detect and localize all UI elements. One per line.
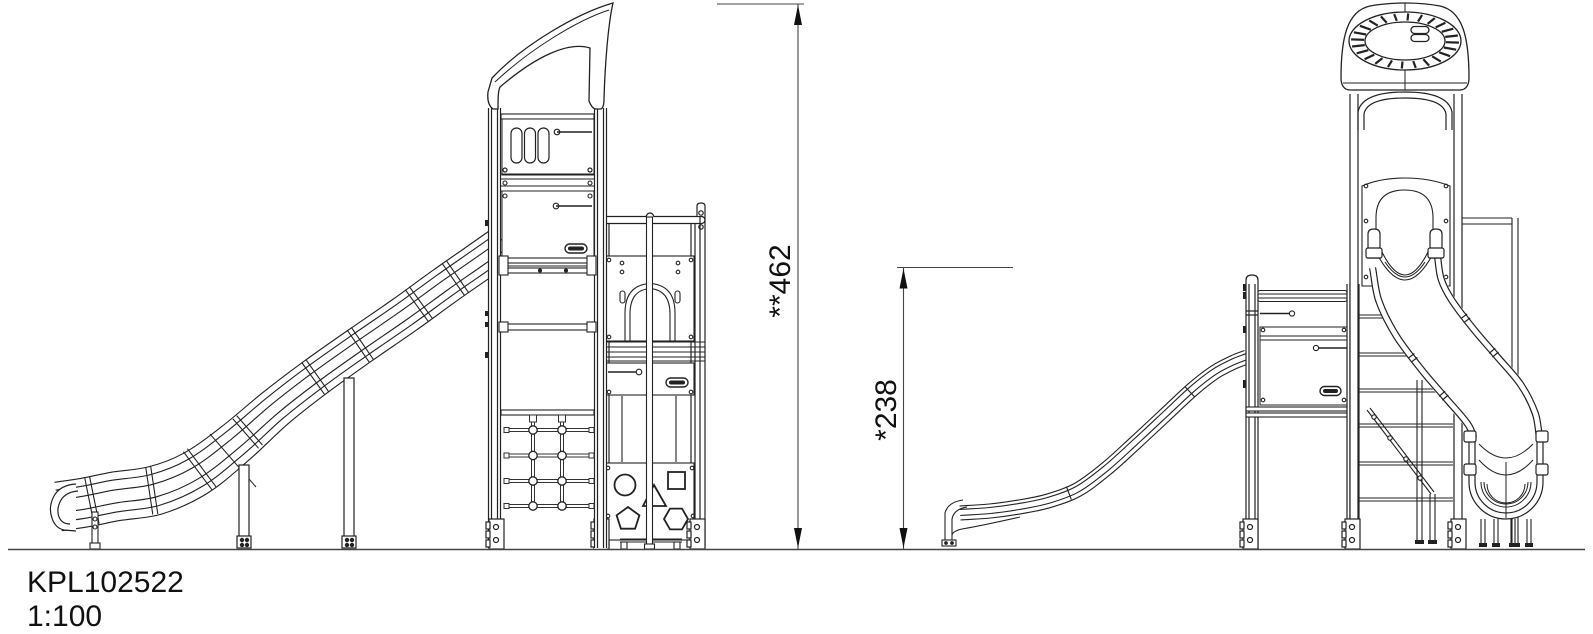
svg-text:**462: **462 [764,244,797,317]
svg-text:KPL102522: KPL102522 [27,566,184,599]
svg-text:*238: *238 [870,379,903,441]
svg-text:1:100: 1:100 [27,600,102,633]
